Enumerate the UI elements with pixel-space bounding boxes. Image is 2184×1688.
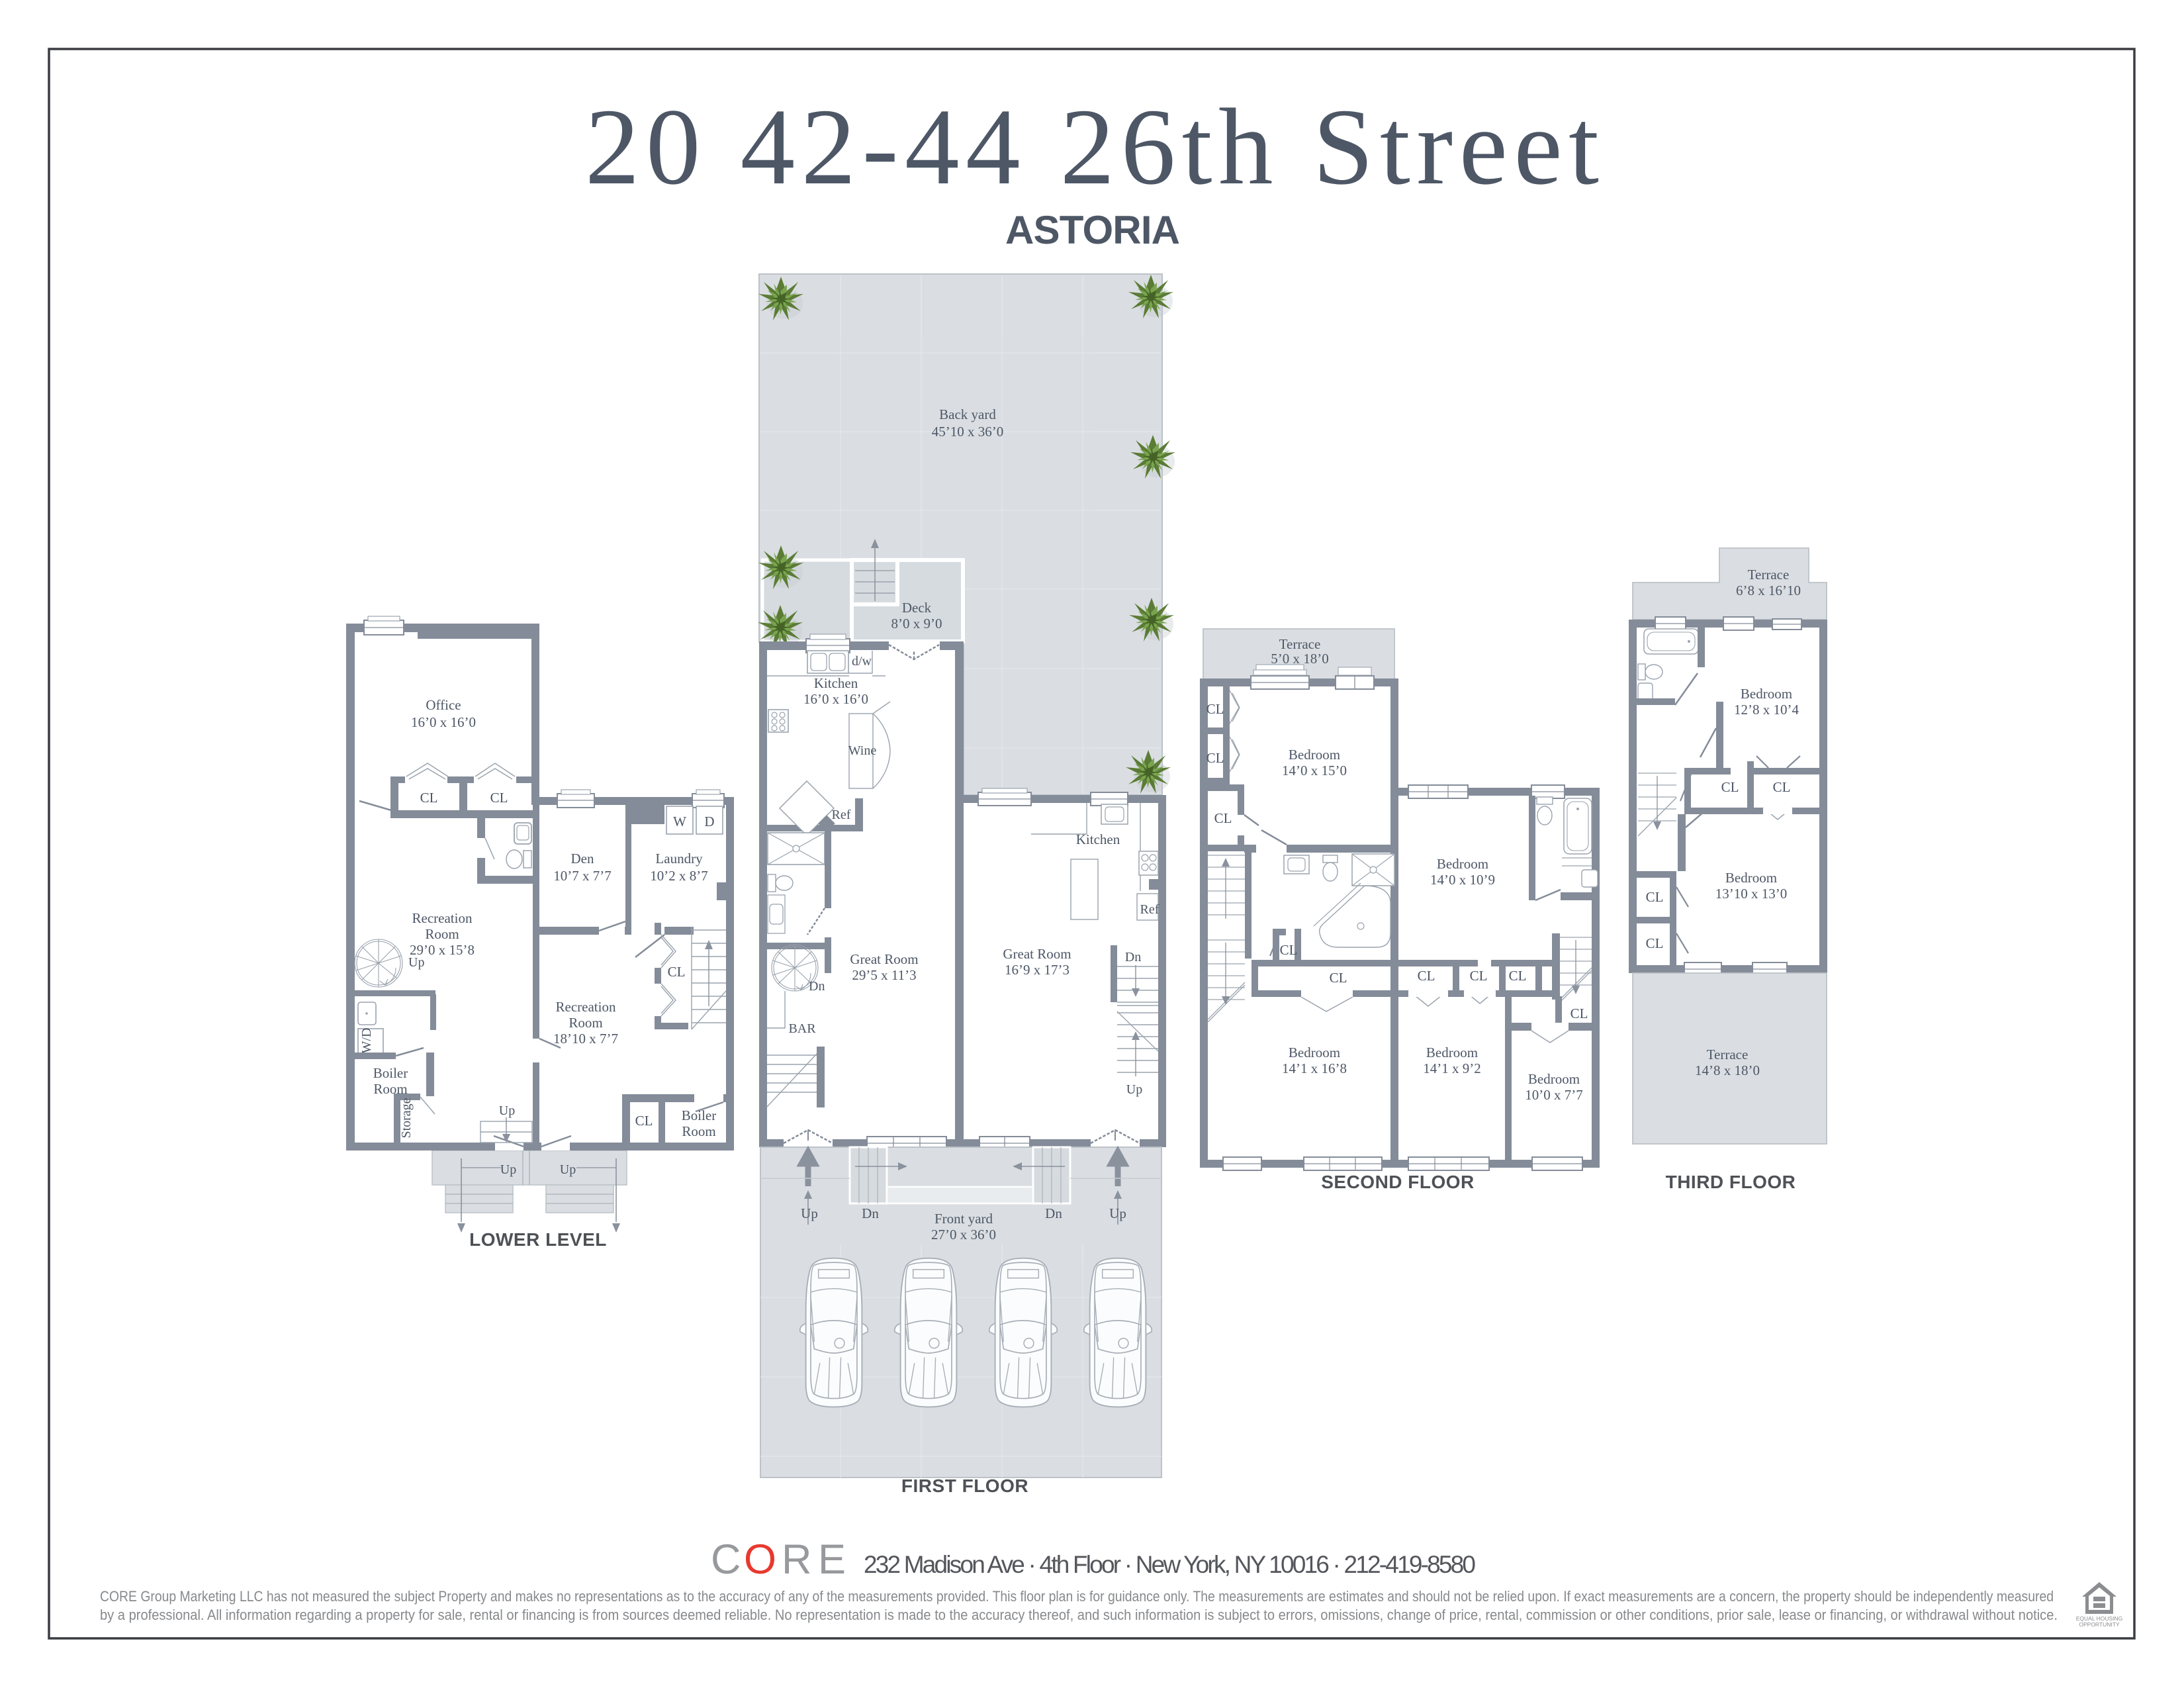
svg-text:14’1 x 16’8: 14’1 x 16’8 <box>1282 1060 1347 1076</box>
svg-text:12’8 x 10’4: 12’8 x 10’4 <box>1734 702 1799 718</box>
svg-text:CL: CL <box>1470 968 1488 984</box>
svg-text:Bedroom: Bedroom <box>1725 870 1777 886</box>
svg-text:Up: Up <box>1126 1082 1142 1097</box>
svg-text:THIRD FLOOR: THIRD FLOOR <box>1666 1172 1796 1192</box>
svg-text:Great Room: Great Room <box>1003 946 1071 962</box>
svg-text:Dn: Dn <box>1125 950 1141 964</box>
svg-text:14’1 x 9’2: 14’1 x 9’2 <box>1423 1060 1481 1076</box>
svg-text:Up: Up <box>801 1205 818 1221</box>
svg-text:Front yard: Front yard <box>934 1211 993 1227</box>
svg-text:Deck: Deck <box>902 600 932 616</box>
svg-text:27’0 x 36’0: 27’0 x 36’0 <box>931 1227 996 1243</box>
svg-text:CL: CL <box>490 790 508 806</box>
svg-text:14’0 x 10’9: 14’0 x 10’9 <box>1430 872 1495 888</box>
svg-text:CL: CL <box>1206 701 1224 717</box>
svg-text:CL: CL <box>1418 968 1435 984</box>
svg-text:Room: Room <box>569 1015 602 1031</box>
svg-text:OPPORTUNITY: OPPORTUNITY <box>2079 1621 2120 1628</box>
svg-text:Ref: Ref <box>832 808 851 822</box>
svg-text:Up: Up <box>500 1162 516 1177</box>
svg-text:Dn: Dn <box>862 1205 879 1221</box>
svg-text:Den: Den <box>571 851 594 867</box>
svg-text:d/w: d/w <box>852 654 872 669</box>
svg-text:10’0 x 7’7: 10’0 x 7’7 <box>1525 1087 1583 1103</box>
svg-text:by a professional. All informa: by a professional. All information regar… <box>100 1607 2058 1623</box>
svg-text:CL: CL <box>420 790 438 806</box>
svg-text:8’0 x 9’0: 8’0 x 9’0 <box>891 616 942 632</box>
svg-text:Boiler: Boiler <box>373 1065 408 1081</box>
svg-text:CL: CL <box>1509 968 1527 984</box>
svg-text:5’0 x 18’0: 5’0 x 18’0 <box>1271 651 1329 667</box>
svg-text:CL: CL <box>1330 970 1347 986</box>
svg-text:Bedroom: Bedroom <box>1741 686 1792 702</box>
svg-text:Up: Up <box>408 955 424 970</box>
svg-text:R: R <box>782 1536 812 1583</box>
svg-text:14’0 x 15’0: 14’0 x 15’0 <box>1282 763 1347 778</box>
svg-text:Back yard: Back yard <box>939 406 996 422</box>
svg-text:Ref: Ref <box>1140 902 1160 917</box>
svg-text:45’10 x 36’0: 45’10 x 36’0 <box>932 424 1004 440</box>
svg-text:CL: CL <box>668 964 686 980</box>
svg-text:Bedroom: Bedroom <box>1426 1045 1478 1060</box>
svg-text:CL: CL <box>1214 810 1232 826</box>
svg-text:Terrace: Terrace <box>1279 636 1321 652</box>
svg-text:Wine: Wine <box>848 743 877 758</box>
svg-text:20 42-44 26th Street: 20 42-44 26th Street <box>585 86 1599 207</box>
svg-text:Bedroom: Bedroom <box>1289 747 1340 763</box>
svg-text:CL: CL <box>1280 942 1298 958</box>
svg-text:Terrace: Terrace <box>1707 1047 1749 1062</box>
svg-text:16’0 x 16’0: 16’0 x 16’0 <box>411 714 476 730</box>
svg-text:Bedroom: Bedroom <box>1437 856 1488 872</box>
svg-text:CL: CL <box>1646 935 1664 951</box>
svg-text:Room: Room <box>425 926 459 942</box>
svg-text:Storage: Storage <box>399 1098 414 1138</box>
svg-text:Room: Room <box>682 1123 715 1139</box>
svg-text:D: D <box>704 814 714 829</box>
svg-text:Recreation: Recreation <box>556 999 616 1015</box>
svg-text:Up: Up <box>560 1162 576 1177</box>
svg-text:Boiler: Boiler <box>682 1107 717 1123</box>
svg-text:Kitchen: Kitchen <box>814 675 858 691</box>
svg-text:232 Madison Ave · 4th Floor ·: 232 Madison Ave · 4th Floor · New York, … <box>864 1551 1476 1578</box>
svg-text:CL: CL <box>1646 889 1664 905</box>
svg-text:Dn: Dn <box>809 979 825 994</box>
svg-text:Laundry: Laundry <box>655 851 703 867</box>
svg-text:CL: CL <box>1570 1006 1588 1021</box>
svg-text:16’9 x 17’3: 16’9 x 17’3 <box>1005 962 1069 978</box>
svg-text:CL: CL <box>1206 750 1224 766</box>
svg-text:Great Room: Great Room <box>850 951 918 967</box>
svg-text:FIRST FLOOR: FIRST FLOOR <box>901 1476 1028 1496</box>
svg-text:Up: Up <box>1109 1205 1126 1221</box>
svg-text:29’5 x 11’3: 29’5 x 11’3 <box>852 967 916 983</box>
svg-text:E: E <box>818 1536 846 1583</box>
svg-text:C: C <box>711 1536 741 1583</box>
svg-text:W: W <box>673 814 686 829</box>
svg-text:W/D: W/D <box>359 1028 374 1054</box>
svg-text:10’7 x 7’7: 10’7 x 7’7 <box>553 868 612 884</box>
svg-text:10’2 x 8’7: 10’2 x 8’7 <box>650 868 708 884</box>
svg-text:18’10 x 7’7: 18’10 x 7’7 <box>553 1031 618 1047</box>
svg-text:14’8 x 18’0: 14’8 x 18’0 <box>1695 1062 1760 1078</box>
svg-text:6’8 x 16’10: 6’8 x 16’10 <box>1736 583 1801 598</box>
svg-text:CL: CL <box>635 1113 653 1129</box>
svg-text:ASTORIA: ASTORIA <box>1005 208 1188 252</box>
svg-text:Dn: Dn <box>1045 1205 1062 1221</box>
svg-text:Kitchen: Kitchen <box>1076 831 1120 847</box>
svg-text:Up: Up <box>499 1103 515 1118</box>
svg-text:Recreation: Recreation <box>412 910 473 926</box>
svg-text:SECOND FLOOR: SECOND FLOOR <box>1321 1172 1475 1192</box>
svg-text:CL: CL <box>1721 779 1739 795</box>
svg-text:BAR: BAR <box>788 1021 816 1036</box>
svg-text:Bedroom: Bedroom <box>1528 1071 1580 1087</box>
svg-text:Terrace: Terrace <box>1748 567 1790 583</box>
svg-text:13’10 x 13’0: 13’10 x 13’0 <box>1715 886 1788 902</box>
svg-text:O: O <box>744 1536 776 1583</box>
svg-text:16’0 x 16’0: 16’0 x 16’0 <box>803 691 868 707</box>
svg-text:Bedroom: Bedroom <box>1289 1045 1340 1060</box>
svg-text:LOWER LEVEL: LOWER LEVEL <box>469 1229 607 1250</box>
svg-text:CORE Group Marketing LLC has n: CORE Group Marketing LLC has not measure… <box>100 1588 2054 1605</box>
svg-text:CL: CL <box>1773 779 1791 795</box>
svg-text:Office: Office <box>426 697 461 713</box>
